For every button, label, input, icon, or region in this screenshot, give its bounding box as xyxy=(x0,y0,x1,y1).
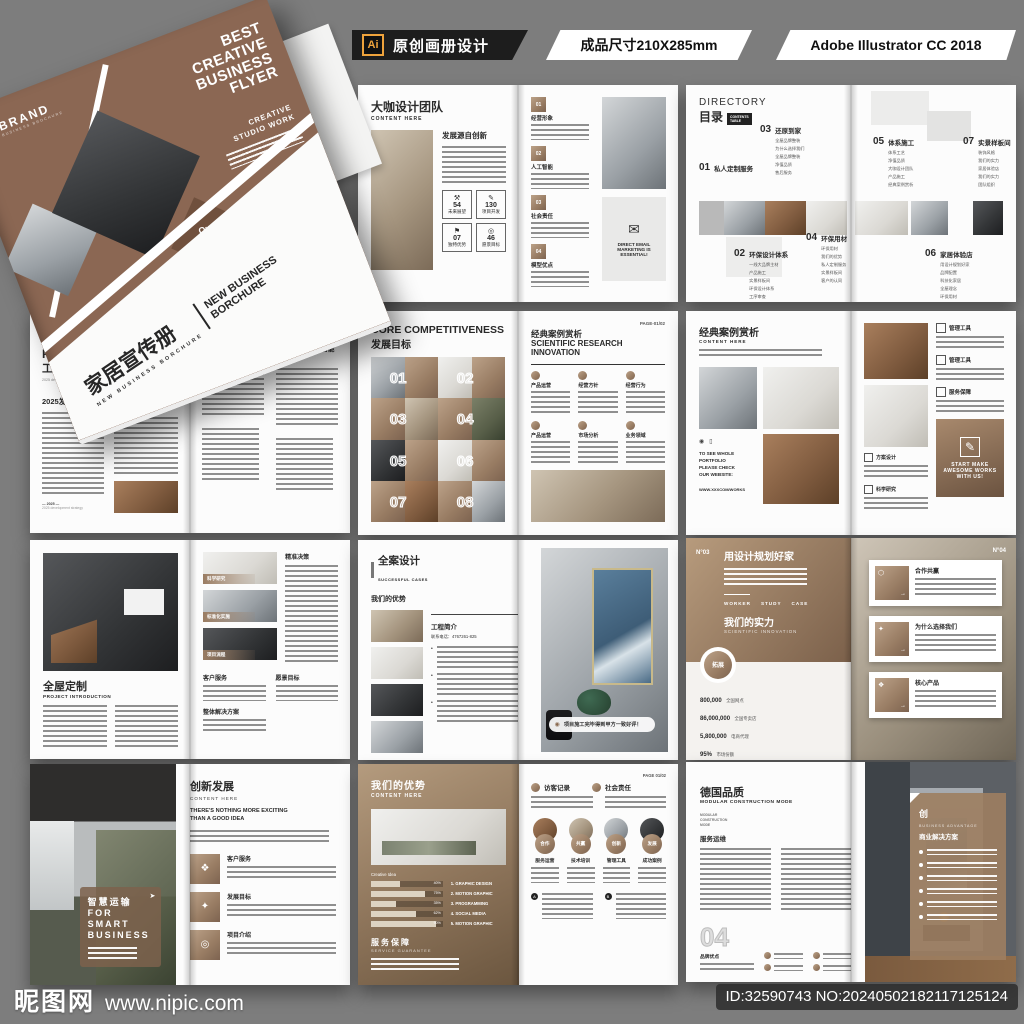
card-title: 合作共赢 xyxy=(915,566,996,575)
project-band-1: 科学研究 xyxy=(203,552,277,584)
entry-item: 环保设计体系 xyxy=(749,285,788,293)
team-section-title: 发展源自创新 xyxy=(442,130,506,141)
cases-left-page: 经典案例赏析 CONTENT HERE ◉ ▯ TO SEE WHOLE POR… xyxy=(686,311,852,535)
plan-white-lines xyxy=(724,568,807,588)
pencil-box-icon: ✎ xyxy=(960,437,980,457)
doc-icon: ▯ xyxy=(709,438,712,445)
item-text-lines xyxy=(531,222,589,238)
skill-name-3: 3. PROGRAMMING xyxy=(451,901,506,906)
stat-number: 130 xyxy=(477,202,505,209)
item-label: 管理工具 xyxy=(949,324,971,332)
core-cell-2: 经营方针 xyxy=(578,371,617,413)
panel-bullet xyxy=(919,902,923,906)
panel-bullet xyxy=(919,915,923,919)
cell-label: 产品运营 xyxy=(531,432,570,439)
team-photo-bedroom xyxy=(602,97,666,189)
loft-stairs xyxy=(51,601,97,663)
grid-number: 07 xyxy=(390,494,407,511)
entry-item: 环保用材 xyxy=(940,293,973,301)
item-label: 客户服务 xyxy=(227,854,336,863)
plan-tag-3: CASE xyxy=(792,601,809,606)
cover-brand-lockup: ⬡ BRAND BUSINESS BROCHURE xyxy=(0,97,64,144)
spread-quality: 德国品质 MODULAR CONSTRUCTION MODE MODULAR C… xyxy=(686,762,1016,982)
circle-tag: 合作 xyxy=(535,834,555,854)
bar-value: 62% xyxy=(434,911,441,915)
stat-label: 未来展望 xyxy=(443,209,471,215)
target-icon: ◎ xyxy=(190,930,220,960)
entry-item: 为什么选择我们 xyxy=(775,145,804,153)
cell-dot-icon xyxy=(578,371,587,380)
panel-lines xyxy=(927,901,997,907)
spread-core: CORE COMPETITIVENESS 发展目标 01 02 03 04 05… xyxy=(358,311,678,535)
entry-item: 体系工艺 xyxy=(888,149,914,157)
smart-title: 创新发展 xyxy=(190,778,336,794)
team-left-page: 大咖设计团队 CONTENT HERE 发展源自创新 ⚒ 54 未来展望 ✎ 1… xyxy=(358,85,519,302)
circle-lines xyxy=(567,867,595,883)
card-lines xyxy=(915,690,996,708)
advantage-circle-3: 创新 管理工具 xyxy=(603,818,631,883)
design-photo-4 xyxy=(371,721,423,753)
hallway-wall-left xyxy=(865,762,910,982)
smart-overlay-box: ➤ 智慧运输 FOR SMART BUSINESS xyxy=(80,887,162,968)
square-icon xyxy=(864,453,873,462)
panel-row xyxy=(919,849,997,855)
entry-item: 产品施工 xyxy=(749,269,788,277)
quality-mini-grid xyxy=(764,952,851,971)
entry-item: 全屋品牌整装 xyxy=(775,153,804,161)
flag-icon: ⚑ xyxy=(443,227,471,235)
stat-value: 86,000,000 xyxy=(700,716,730,722)
panel-row xyxy=(919,914,997,920)
project-lower-lines-1 xyxy=(203,685,266,701)
entry-item: 品牌配置 xyxy=(940,269,973,277)
adobe-illustrator-icon: Ai xyxy=(362,34,384,56)
head-lines xyxy=(531,796,593,810)
cell-lines xyxy=(626,391,665,413)
plan-card-2: ✦ → 为什么选择我们 xyxy=(869,616,1002,662)
cases-cta-text: START MAKE AWESOME WORKS WITH US! xyxy=(943,462,996,480)
profile-right-lines-2 xyxy=(202,428,259,482)
item-label: 科学研究 xyxy=(876,486,896,493)
cell-label: 市场分析 xyxy=(578,432,617,439)
advantage-h2-sub: SERVICE GUARANTEE xyxy=(371,948,506,953)
design-par-2 xyxy=(437,673,518,695)
team-subtitle: CONTENT HERE xyxy=(371,116,506,122)
tools-icon: ⚒ xyxy=(443,194,471,202)
item-label: 项目介绍 xyxy=(227,930,336,939)
cell-label: 业务领域 xyxy=(626,432,665,439)
team-text-lines xyxy=(442,146,506,184)
smart-slogan: THERE'S NOTHING MORE EXCITING THAN A GOO… xyxy=(190,808,336,824)
smart-overlay-cn: 智慧运输 xyxy=(88,895,154,908)
item-number: 01 xyxy=(536,102,542,108)
design-subtitle: SUCCESSFUL CASES xyxy=(378,577,428,582)
cases-right-page: 方案设计 科学研究 管理工具 管理工具 服务保障 xyxy=(852,311,1016,535)
target-icon: ◎ xyxy=(477,227,505,235)
entry-item: 我们的实力 xyxy=(978,173,1011,181)
skill-bar-3: 35% xyxy=(371,901,443,907)
entry-number: 07 xyxy=(963,137,974,189)
design-photo-2 xyxy=(371,647,423,679)
core-cell-4: 产品运营 xyxy=(531,421,570,463)
bullet-dot: • xyxy=(431,700,433,722)
design-photo-1 xyxy=(371,610,423,642)
team-item-3: 03 社会责任 xyxy=(531,195,594,238)
entry-item: 家居体验店 xyxy=(978,165,1011,173)
smart-item-1: ❖ 客户服务 xyxy=(190,854,336,884)
stat-number: 54 xyxy=(443,202,471,209)
item-lines xyxy=(864,497,928,511)
item-label: 发展目标 xyxy=(227,892,336,901)
entry-item: 全屋理念 xyxy=(940,285,973,293)
strip-photo-hall xyxy=(724,201,765,235)
plan-h-sub: SCIENTIFIC INNOVATION xyxy=(724,629,843,634)
project-lower-lines-2 xyxy=(276,685,339,701)
directory-entry-06: 06 家居体验店 用设计规划好家 品牌配置 科技化家居 全屋理念 环保用材 xyxy=(925,249,973,301)
item-label: 人工智能 xyxy=(531,163,594,171)
project-lower-2: 愿景目标 xyxy=(276,673,339,682)
project-lines-1 xyxy=(43,705,107,749)
strip-photo-clock xyxy=(973,201,1003,235)
bar-value: 75% xyxy=(434,891,441,895)
entry-item: 一线大品牌主材 xyxy=(749,261,788,269)
band-label: 项目流程 xyxy=(203,650,255,660)
grid-number: 04 xyxy=(457,411,474,428)
strip-photo-livingroom xyxy=(911,201,949,235)
watermark-logo: 昵图网 xyxy=(14,982,95,1018)
quality-label-lines xyxy=(700,963,754,971)
plan-tag-1: WORKER xyxy=(724,601,751,606)
mini-lines xyxy=(774,953,803,959)
project-photo-loft xyxy=(43,553,178,671)
cases-portfolio-note: TO SEE WHOLE PORTFOLIO PLEASE CHECK OUR … xyxy=(699,451,757,479)
circle-tag: 创新 xyxy=(606,834,626,854)
advantage-right-page: PAGE 01/02 访客记录 社会责任 合作 服务运营 xyxy=(519,764,678,985)
mini-lines xyxy=(823,953,852,959)
core-title-cn: 发展目标 xyxy=(371,336,505,351)
smart-item-2: ✦ 发展目标 xyxy=(190,892,336,922)
cases-photo-staircase xyxy=(699,367,757,429)
directory-title-cn: 目录 xyxy=(699,108,723,125)
header-software-label: Adobe Illustrator CC 2018 xyxy=(810,37,981,53)
panel-row xyxy=(919,901,997,907)
grid-tile xyxy=(472,357,506,398)
cell-label: 经营行为 xyxy=(626,382,665,389)
skill-name-1: 1. GRAPHIC DESIGN xyxy=(451,881,506,886)
blocks-icon: ❖ xyxy=(190,854,220,884)
grid-tile xyxy=(405,357,439,398)
arrow-icon: → xyxy=(900,703,906,709)
spread-project: 全屋定制 PROJECT INTRODUCTION 科学研究 标准化实施 项目流… xyxy=(30,540,350,759)
pencil-icon: ✎ xyxy=(477,194,505,202)
item-lines xyxy=(227,904,336,918)
entry-number: 02 xyxy=(734,249,745,301)
project-lower-lines-3 xyxy=(203,719,266,731)
plan-badge-text: 拓展 xyxy=(712,660,724,669)
team-item-4: 04 模型优点 xyxy=(531,244,594,287)
advantage-title: 我们的优势 xyxy=(371,777,506,792)
core-right-title-en: SCIENTIFIC RESEARCH INNOVATION xyxy=(531,340,665,358)
project-lines-2 xyxy=(115,705,179,749)
advantage-h2: 服务保障 xyxy=(371,937,506,948)
header-size-label: 成品尺寸210X285mm xyxy=(581,35,718,55)
grid-photo xyxy=(405,398,439,439)
entry-item: 全屋品牌整装 xyxy=(775,137,804,145)
panel-bullet xyxy=(919,863,923,867)
cell-label: 经营方针 xyxy=(578,382,617,389)
quality-small: MODULAR CONSTRUCTION MODE xyxy=(700,813,851,828)
square-icon xyxy=(936,323,946,333)
grid-tile xyxy=(405,440,439,481)
entry-item: 售后服务 xyxy=(775,169,804,177)
cell-dot-icon xyxy=(578,421,587,430)
email-icon: ✉ xyxy=(628,221,640,238)
arrow-icon: → xyxy=(900,647,906,653)
entry-title: 私人定制服务 xyxy=(714,163,753,173)
grid-number: 03 xyxy=(390,411,407,428)
entry-item: 实景样板间 xyxy=(749,277,788,285)
spark-icon: ✦ xyxy=(190,892,220,922)
entry-title: 实景样板间 xyxy=(978,137,1011,147)
mini-lines xyxy=(823,965,852,971)
card-title: 为什么选择我们 xyxy=(915,622,996,631)
head-label: 访客记录 xyxy=(544,782,570,792)
stat-label: 全国网点 xyxy=(726,698,744,703)
plan-stat-2: 86,000,000 全国专卖店 xyxy=(700,707,839,725)
cases-item-2: 管理工具 xyxy=(936,355,1004,380)
circle-label: 服务运营 xyxy=(535,857,554,864)
item-label: 管理工具 xyxy=(949,356,971,364)
smart-subtitle: CONTENT HERE xyxy=(190,796,336,801)
smart-overlay-lines xyxy=(88,947,137,959)
core-cell-5: 市场分析 xyxy=(578,421,617,463)
quality-panel-icon: 创 xyxy=(919,807,997,820)
cases-site: WWW.XXXCOM/WORKS xyxy=(699,487,757,492)
entry-title: 环保用材 xyxy=(821,233,847,243)
spread-advantage: 我们的优势 CONTENT HERE Creative Idea 40% 75%… xyxy=(358,764,678,985)
cases-item-1: 管理工具 xyxy=(936,323,1004,348)
panel-row xyxy=(919,862,997,868)
note-lines xyxy=(616,893,667,919)
directory-title-en: DIRECTORY xyxy=(699,97,767,108)
quality-right-page: 创 BUSINESS ADVANTAGE 商业解决方案 xyxy=(865,762,1016,982)
ring-icon xyxy=(764,964,771,971)
entry-item: 装饰风格 xyxy=(978,149,1011,157)
panel-fold-corner xyxy=(910,793,920,803)
cell-lines xyxy=(578,391,617,413)
square-icon xyxy=(864,485,873,494)
grid-photo xyxy=(405,481,439,522)
email-note-box: ✉ DIRECT EMAIL MARKETING IS ESSENTIAL! xyxy=(602,197,666,281)
item-label: 方案设计 xyxy=(876,454,896,461)
panel-bullet xyxy=(919,850,923,854)
cases-subtitle: CONTENT HERE xyxy=(699,339,839,344)
entry-number: 04 xyxy=(806,233,817,285)
entry-number: 06 xyxy=(925,249,936,301)
cell-lines xyxy=(578,441,617,463)
core-cell-1: 产品运营 xyxy=(531,371,570,413)
square-icon xyxy=(936,355,946,365)
advantage-left-page: 我们的优势 CONTENT HERE Creative Idea 40% 75%… xyxy=(358,764,519,985)
stat-label: 全国专卖店 xyxy=(734,716,756,721)
quality-h: 服务运维 xyxy=(700,833,851,843)
item-number: 03 xyxy=(536,200,542,206)
design-box-title: 工程简介 xyxy=(431,621,518,631)
quality-panel-title: 商业解决方案 xyxy=(919,831,997,841)
entry-number: 03 xyxy=(760,125,771,177)
profile-right-lines-4 xyxy=(276,438,333,492)
skill-name-5: 5. MOTION GRAPHIC xyxy=(451,921,506,926)
circle-tag: 共赢 xyxy=(571,834,591,854)
cell-dot-icon xyxy=(626,421,635,430)
quality-left-page: 德国品质 MODULAR CONSTRUCTION MODE MODULAR C… xyxy=(686,762,865,982)
ring-icon xyxy=(813,964,820,971)
skill-bar-2: 75% xyxy=(371,891,443,897)
entry-number: 01 xyxy=(699,163,710,175)
project-col-lines xyxy=(285,565,338,665)
skill-bar-4: 62% xyxy=(371,911,443,917)
project-right-page: 科学研究 标准化实施 项目流程 精准决策 客户服务 整体解决方案 xyxy=(191,540,350,759)
item-number: 04 xyxy=(536,249,542,255)
plan-left-page: N°03 用设计规划好家 WORKER STUDY CASE 我们的实力 SCI… xyxy=(686,538,851,760)
design-photo-3 xyxy=(371,684,423,716)
panel-lines xyxy=(927,862,997,868)
grid-photo xyxy=(472,398,506,439)
cases-photo-wardrobe xyxy=(763,434,839,504)
advantage-h2-lines xyxy=(371,958,459,972)
item-lines xyxy=(936,400,1004,412)
cell-dot-icon xyxy=(531,421,540,430)
entry-item: 我们的实力 xyxy=(978,157,1011,165)
strip-gap xyxy=(951,201,970,235)
band-label: 科学研究 xyxy=(203,574,255,584)
plan-divider xyxy=(724,594,750,595)
core-left-page: CORE COMPETITIVENESS 发展目标 01 02 03 04 05… xyxy=(358,311,518,535)
bar-value: 90% xyxy=(434,921,441,925)
quality-panel-tag: BUSINESS ADVANTAGE xyxy=(919,824,997,828)
strip-photo-sofa xyxy=(855,201,908,235)
item-label: 模型优点 xyxy=(531,261,594,269)
entry-item: 大咖设计团队 xyxy=(888,165,914,173)
design-right-page: ◉ 项目施工完毕得到甲方一致好评！ xyxy=(531,540,678,760)
team-right-page: 01 经营形象 02 人工智能 03 社会责任 04 模型优点 xyxy=(519,85,678,302)
entry-item: 客户的认同 xyxy=(821,277,847,285)
cases-cta-box: ✎ START MAKE AWESOME WORKS WITH US! xyxy=(936,419,1004,497)
panel-bullet xyxy=(919,889,923,893)
advantage-circle-4: 发展 成功案例 xyxy=(638,818,666,883)
quality-panel: 创 BUSINESS ADVANTAGE 商业解决方案 xyxy=(910,793,1006,960)
profile-right-lines-3 xyxy=(276,368,338,428)
header-software-segment: Adobe Illustrator CC 2018 xyxy=(776,30,1016,60)
design-title: 全案设计 xyxy=(378,553,428,568)
circle-lines xyxy=(603,867,631,883)
stat-box-3: ⚑ 07 独特优势 xyxy=(442,223,472,252)
project-subtitle: PROJECT INTRODUCTION xyxy=(43,694,178,699)
item-label: 服务保障 xyxy=(949,388,971,396)
quality-subtitle: MODULAR CONSTRUCTION MODE xyxy=(700,800,851,805)
room-painting xyxy=(592,568,653,684)
ring-icon xyxy=(764,952,771,959)
design-photo-room: ◉ 项目施工完毕得到甲方一致好评！ xyxy=(541,548,668,752)
directory-right-page: 05 体系施工 体系工艺 净值品质 大咖设计团队 产品施工 经典案例赏析 07 … xyxy=(851,85,1016,302)
card-lines xyxy=(915,634,996,652)
item-lines xyxy=(936,336,1004,348)
square-icon xyxy=(936,387,946,397)
panel-lines xyxy=(927,888,997,894)
strip-photo-closet xyxy=(765,201,806,235)
entry-item: 实景样板间 xyxy=(821,269,847,277)
skill-bar-5: 90% xyxy=(371,921,443,927)
sofa-pillows xyxy=(382,841,477,854)
note-lines xyxy=(542,893,593,919)
project-band-2: 标准化实施 xyxy=(203,590,277,622)
skill-name-2: 2. MOTION GRAPHIC xyxy=(451,891,506,896)
directory-entry-07: 07 实景样板间 装饰风格 我们的实力 家居体验店 我们的实力 团队组织 xyxy=(963,137,1011,189)
design-h: 我们的优势 xyxy=(371,594,518,604)
header-size-segment: 成品尺寸210X285mm xyxy=(546,30,752,60)
spread-design-team: 大咖设计团队 CONTENT HERE 发展源自创新 ⚒ 54 未来展望 ✎ 1… xyxy=(358,85,678,302)
cell-label: 产品运营 xyxy=(531,382,570,389)
item-number: 02 xyxy=(536,151,542,157)
blocks-icon: ❖ xyxy=(878,681,884,689)
panel-lines xyxy=(927,914,997,920)
bullet-a-icon: A xyxy=(531,893,538,900)
grid-number: 08 xyxy=(457,494,474,511)
smart-left-page: ➤ 智慧运输 FOR SMART BUSINESS xyxy=(30,764,176,985)
bullet-dot: • xyxy=(431,646,433,668)
smart-photo-city xyxy=(30,821,74,909)
plan-no-right: N°04 xyxy=(993,548,1006,554)
directory-deco-rect-2 xyxy=(871,91,929,125)
item-text-lines xyxy=(531,173,589,189)
stat-label: 愿景目标 xyxy=(477,242,505,248)
bullet-dot: • xyxy=(431,673,433,695)
advantage-photo-livingroom xyxy=(371,809,506,865)
entry-title: 还原到家 xyxy=(775,125,804,135)
directory-entry-01: 01 私人定制服务 xyxy=(699,163,753,175)
entry-item: 团队组织 xyxy=(978,181,1011,189)
panel-lines xyxy=(927,875,997,881)
stat-value: 800,000 xyxy=(700,698,722,704)
spread-design: 全案设计 SUCCESSFUL CASES 我们的优势 工程简介 联系电话：47… xyxy=(358,540,678,760)
core-divider xyxy=(531,364,665,365)
design-left-page: 全案设计 SUCCESSFUL CASES 我们的优势 工程简介 联系电话：47… xyxy=(358,540,531,760)
directory-entry-02: 02 环保设计体系 一线大品牌主材 产品施工 实景样板间 环保设计体系 工序审查 xyxy=(734,249,788,301)
core-photo-lobby xyxy=(531,470,665,522)
project-lower-1: 客户服务 xyxy=(203,673,266,682)
plan-badge-circle: 拓展 xyxy=(700,647,736,683)
item-lines xyxy=(864,465,928,479)
directory-photo-strip-left xyxy=(699,201,847,235)
directory-subtitle: CONTENTS TABLE xyxy=(727,113,752,125)
entry-item: 净值品质 xyxy=(775,161,804,169)
cases-intro-lines xyxy=(699,349,822,359)
item-lines xyxy=(227,942,336,956)
plan-stat-3: 5,800,000 电商代理 xyxy=(700,725,839,743)
stat-value: 95% xyxy=(700,752,712,758)
card-title: 核心产品 xyxy=(915,678,996,687)
quality-lines-2 xyxy=(781,848,852,912)
profile-photo-stairs xyxy=(114,481,178,513)
panel-bullet xyxy=(919,876,923,880)
cell-lines xyxy=(626,441,665,463)
stat-number: 46 xyxy=(477,235,505,242)
advantage-head-1: 访客记录 xyxy=(531,782,570,792)
project-left-page: 全屋定制 PROJECT INTRODUCTION xyxy=(30,540,191,759)
header-product-segment: Ai 原创画册设计 xyxy=(352,30,528,60)
profile-footer-note: 2025 development strategy xyxy=(42,506,104,510)
circle-lines xyxy=(531,867,559,883)
